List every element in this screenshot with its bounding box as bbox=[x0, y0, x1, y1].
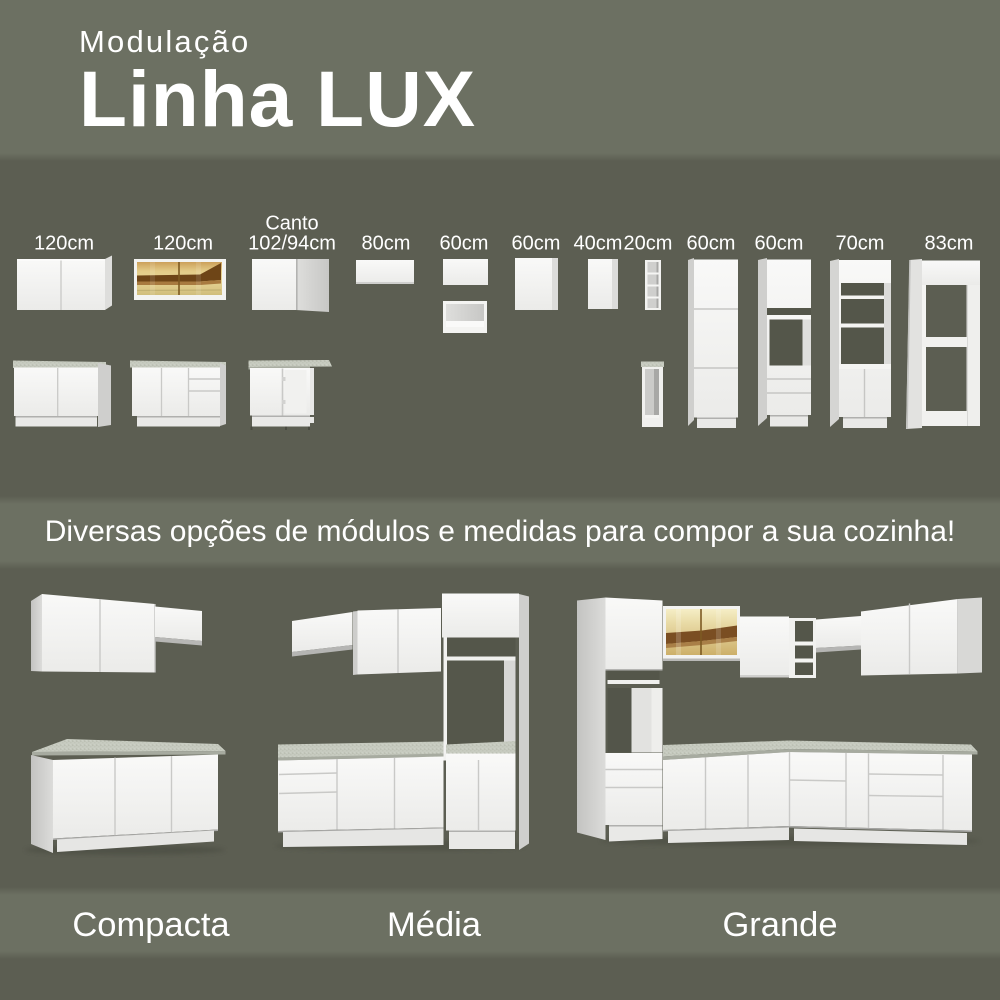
svg-text:120cm: 120cm bbox=[153, 233, 213, 255]
svg-text:Linha LUX: Linha LUX bbox=[79, 55, 476, 143]
svg-text:40cm: 40cm bbox=[574, 233, 623, 255]
svg-text:20cm: 20cm bbox=[624, 233, 673, 255]
svg-text:120cm: 120cm bbox=[34, 233, 94, 255]
svg-text:60cm: 60cm bbox=[440, 233, 489, 255]
svg-text:Canto: Canto bbox=[265, 213, 318, 235]
svg-text:60cm: 60cm bbox=[755, 233, 804, 255]
svg-text:70cm: 70cm bbox=[836, 233, 885, 255]
svg-text:83cm: 83cm bbox=[925, 233, 974, 255]
svg-text:Diversas opções de módulos e m: Diversas opções de módulos e medidas par… bbox=[45, 515, 956, 548]
svg-text:80cm: 80cm bbox=[362, 233, 411, 255]
svg-text:Média: Média bbox=[387, 906, 482, 944]
svg-text:Compacta: Compacta bbox=[72, 906, 230, 944]
svg-text:Modulação: Modulação bbox=[79, 24, 250, 59]
svg-text:Grande: Grande bbox=[722, 906, 837, 944]
svg-text:60cm: 60cm bbox=[687, 233, 736, 255]
svg-text:60cm: 60cm bbox=[512, 233, 561, 255]
svg-text:102/94cm: 102/94cm bbox=[248, 233, 336, 255]
